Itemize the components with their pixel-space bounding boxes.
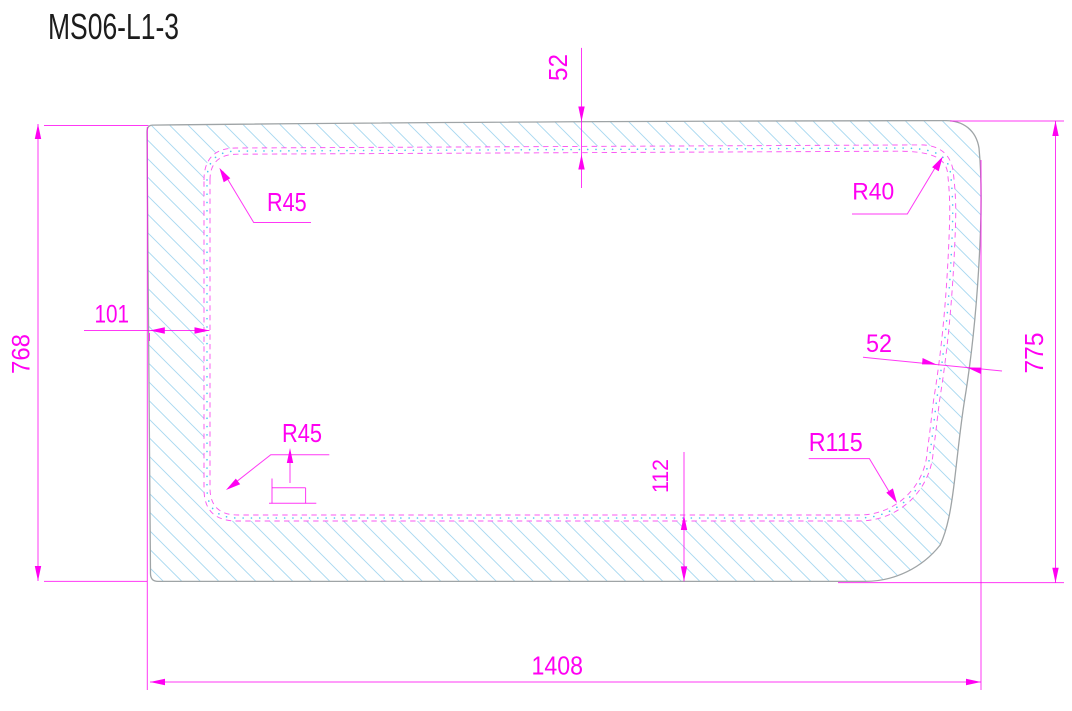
svg-text:1408: 1408	[532, 650, 584, 680]
svg-text:52: 52	[866, 330, 892, 358]
svg-text:775: 775	[1019, 333, 1049, 374]
svg-text:112: 112	[648, 459, 673, 493]
svg-text:101: 101	[95, 301, 130, 329]
svg-text:R45: R45	[267, 187, 307, 217]
svg-text:768: 768	[8, 334, 36, 374]
svg-text:R115: R115	[809, 427, 863, 457]
svg-text:R40: R40	[852, 179, 894, 206]
svg-text:52: 52	[543, 54, 573, 81]
svg-text:MS06-L1-3: MS06-L1-3	[48, 6, 179, 47]
svg-text:R45: R45	[282, 418, 322, 448]
